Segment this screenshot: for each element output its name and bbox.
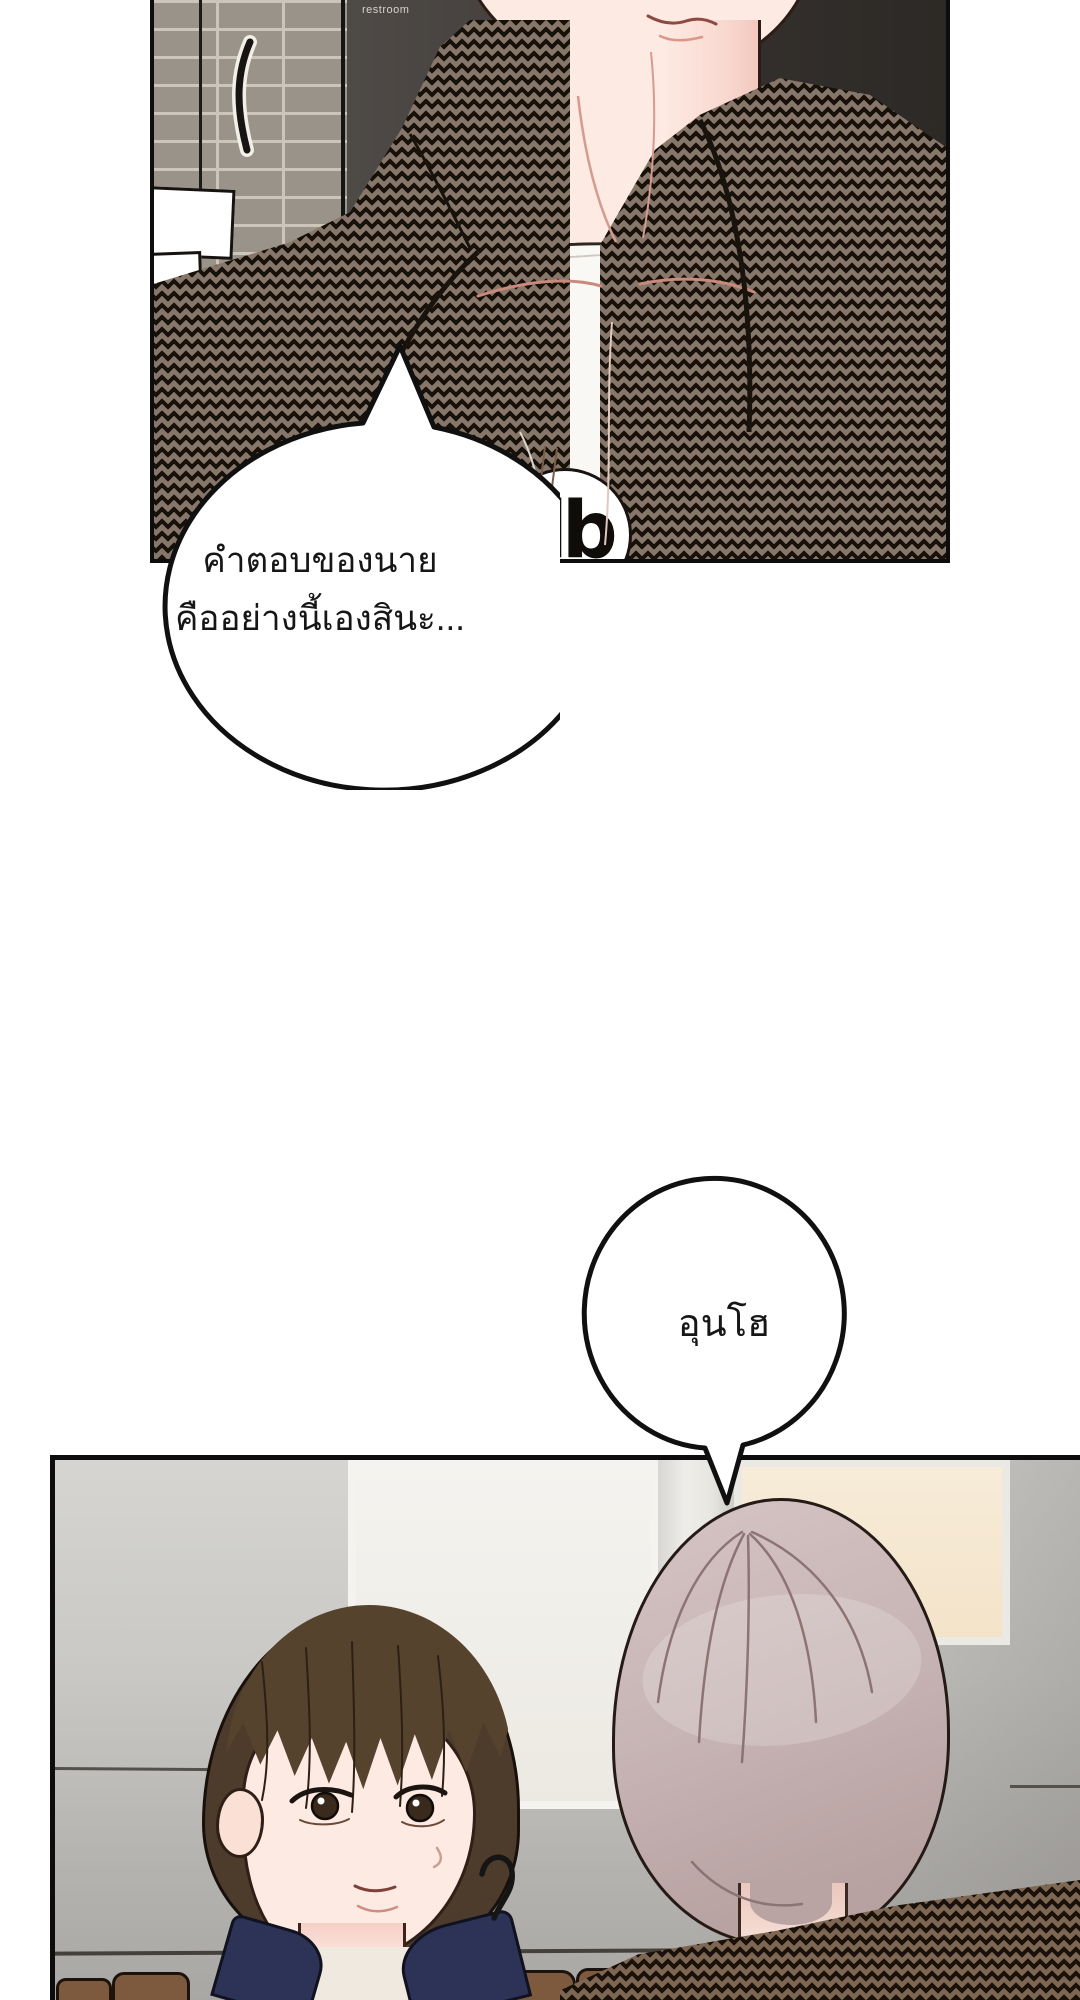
panel1-border-right xyxy=(946,0,950,563)
lower-lip-line xyxy=(660,36,702,40)
panel2-border-left xyxy=(50,1455,55,2000)
collarbone-line xyxy=(640,279,754,292)
comic-page: restroom db xyxy=(0,0,1080,2000)
swirl-mark xyxy=(482,1857,512,1918)
panel2-lineart xyxy=(50,1455,1080,2000)
speech-bubble-1-line1: คำตอบของนาย xyxy=(202,541,437,580)
neck-line xyxy=(643,52,654,238)
speech-bubble-2: อุนโฮ xyxy=(555,1150,895,1525)
shoulder-seam xyxy=(410,134,470,248)
left-person-mouth xyxy=(355,1886,395,1891)
shirt-fold xyxy=(605,322,612,545)
speech-bubble-1-line2: คืออย่างนี้เองสินะ... xyxy=(175,592,465,638)
mouth-line xyxy=(648,16,716,24)
panel-2 xyxy=(50,1455,1080,2000)
left-person-nose xyxy=(434,1848,441,1867)
left-person-lower-lip xyxy=(358,1906,397,1911)
hair-strands xyxy=(658,1532,872,1905)
lapel-line xyxy=(700,120,750,432)
left-person-eyes xyxy=(292,1787,445,1826)
neck-line xyxy=(578,96,616,242)
speech-bubble-1: คำตอบของนาย คืออย่างนี้เองสินะ... xyxy=(80,330,560,790)
collarbone-line xyxy=(478,281,601,296)
speech-bubble-2-text: อุนโฮ xyxy=(678,1301,770,1346)
